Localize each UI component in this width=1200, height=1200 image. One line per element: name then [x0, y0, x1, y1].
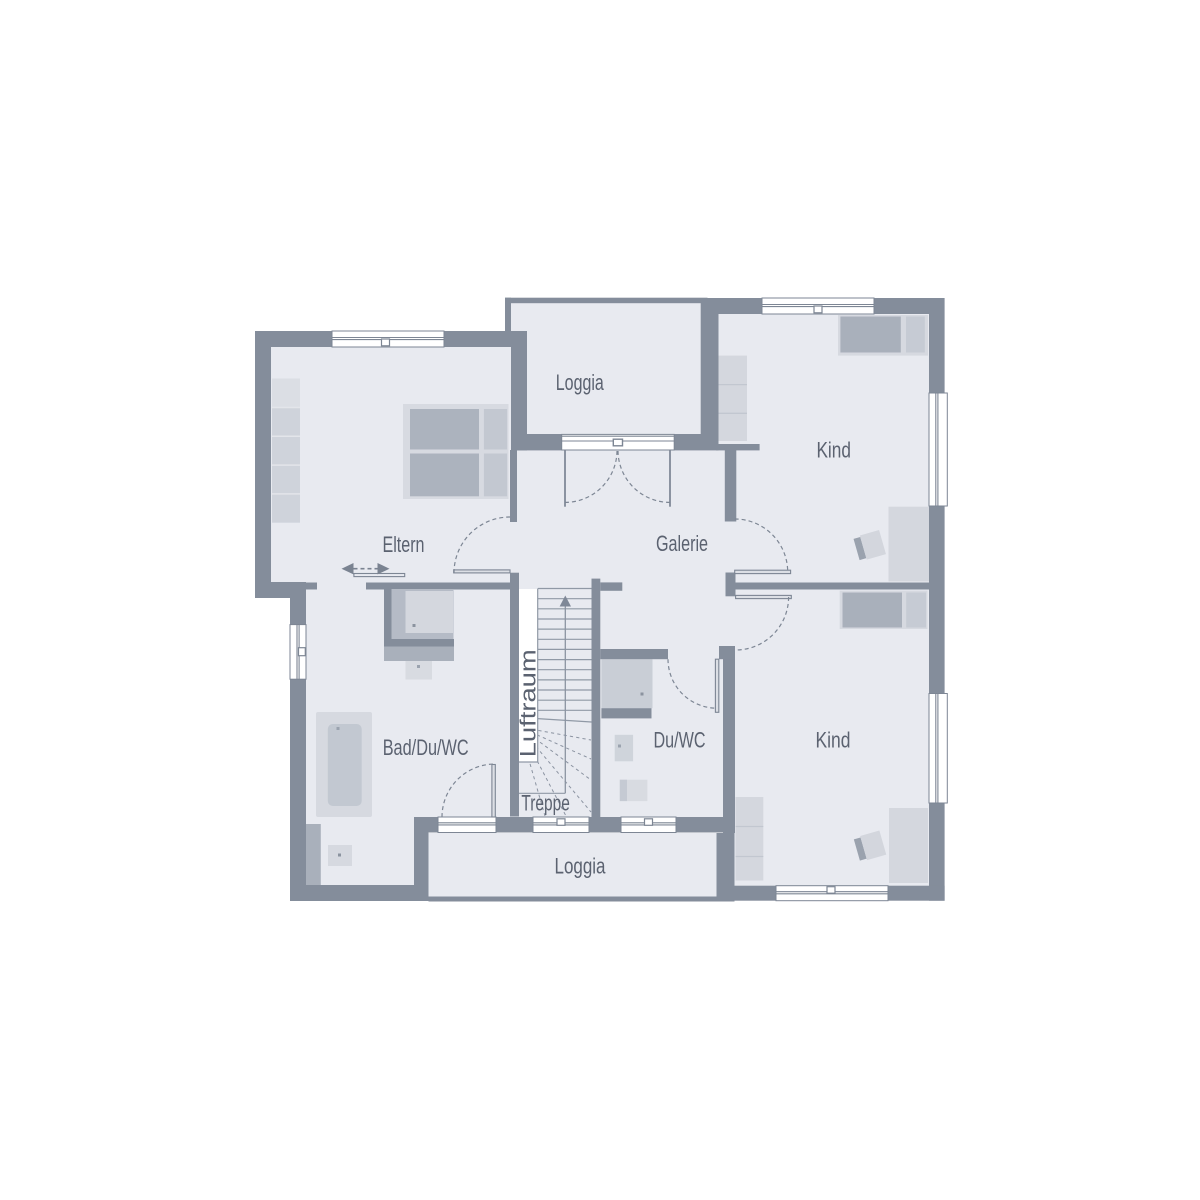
svg-text:Loggia: Loggia — [555, 854, 607, 879]
svg-text:Luftraum: Luftraum — [516, 649, 541, 757]
svg-text:Eltern: Eltern — [383, 532, 425, 557]
svg-text:Kind: Kind — [816, 728, 851, 753]
svg-text:Treppe: Treppe — [521, 791, 569, 816]
svg-text:Du/WC: Du/WC — [654, 728, 706, 753]
svg-text:Kind: Kind — [816, 438, 851, 463]
svg-text:Loggia: Loggia — [556, 370, 605, 395]
svg-text:Bad/Du/WC: Bad/Du/WC — [383, 735, 469, 760]
svg-text:Galerie: Galerie — [656, 531, 708, 556]
